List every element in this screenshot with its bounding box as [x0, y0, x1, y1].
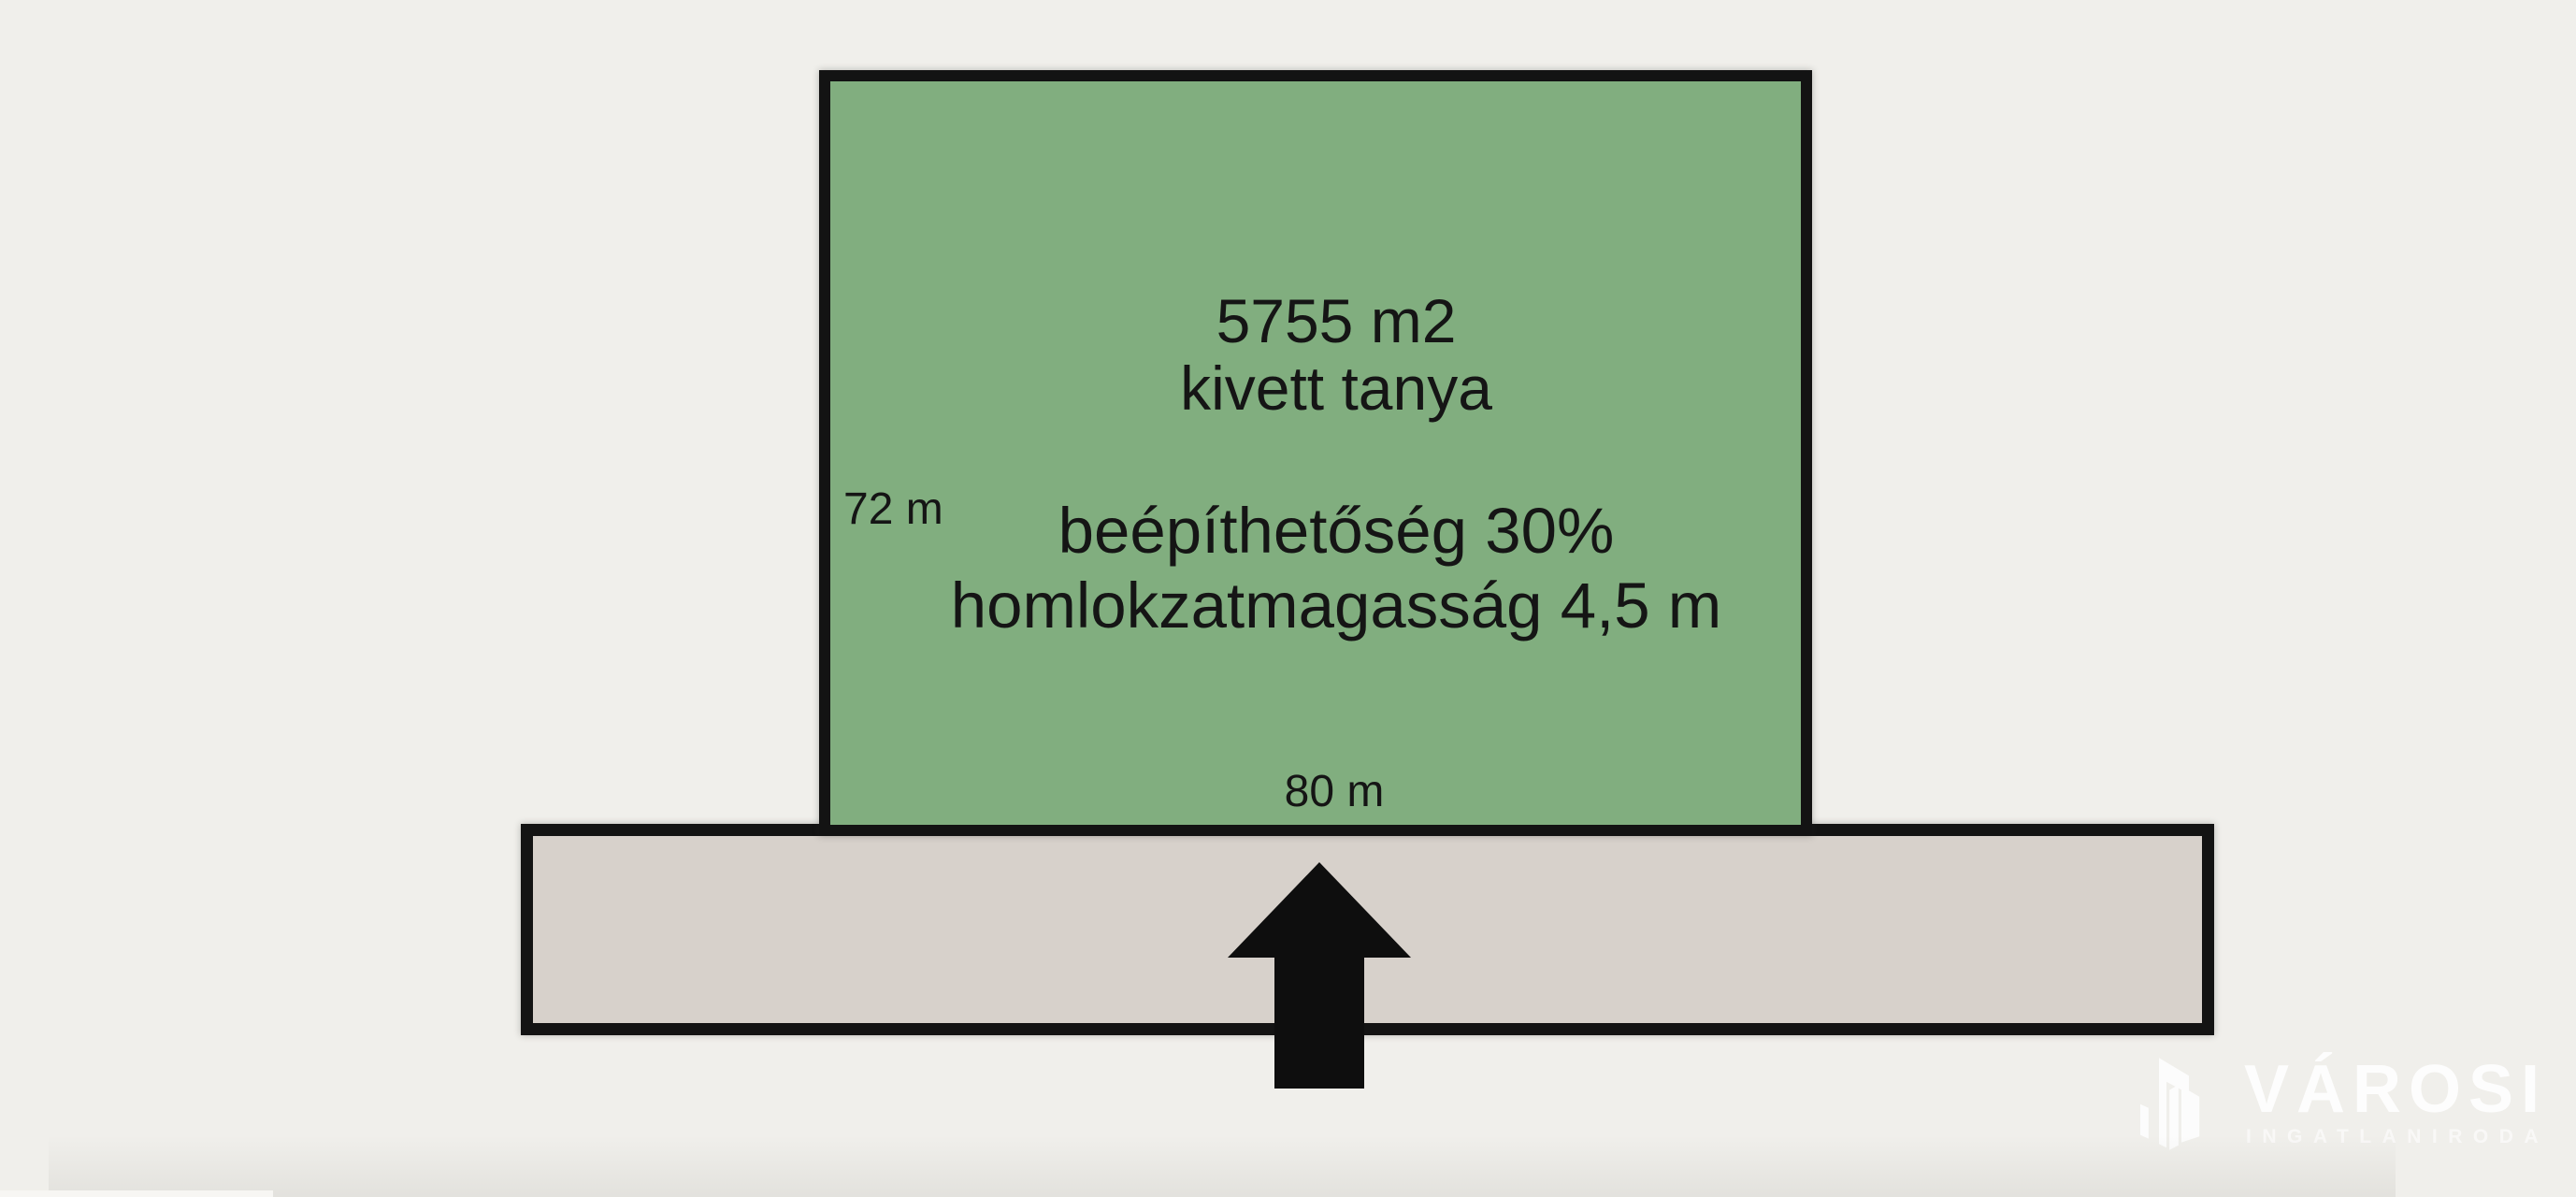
facade-height-label: homlokzatmagasság 4,5 m — [851, 569, 1821, 643]
bottom-gradient-band — [49, 1135, 2396, 1197]
access-arrow-icon — [1226, 860, 1413, 1090]
land-plot: 5755 m2 kivett tanya beépíthetőség 30% h… — [819, 70, 1812, 836]
area-label: 5755 m2 — [851, 287, 1821, 354]
watermark-brand-text: VÁROSI — [2244, 1051, 2547, 1128]
access-arrow-shape — [1228, 862, 1411, 1089]
land-type-label: kivett tanya — [851, 354, 1821, 422]
buildability-label: beépíthetőség 30% — [851, 494, 1821, 569]
diagram-canvas: 5755 m2 kivett tanya beépíthetőség 30% h… — [0, 0, 2576, 1197]
plot-regulations: beépíthetőség 30% homlokzatmagasság 4,5 … — [851, 494, 1821, 643]
bottom-left-strip — [0, 1190, 273, 1197]
front-length-label: 80 m — [849, 768, 1820, 816]
plot-headline: 5755 m2 kivett tanya — [851, 287, 1821, 422]
side-length-label: 72 m — [843, 485, 943, 534]
